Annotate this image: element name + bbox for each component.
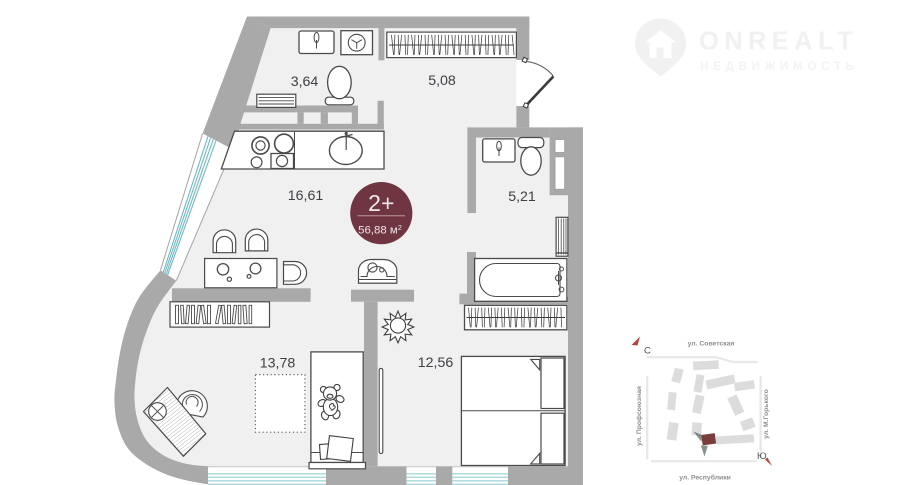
svg-text:5,08: 5,08 [428,73,456,89]
svg-text:5,21: 5,21 [508,189,536,205]
svg-text:2+: 2+ [368,190,394,216]
svg-text:С: С [644,346,651,357]
svg-text:12,56: 12,56 [418,355,454,371]
svg-text:3,64: 3,64 [291,74,319,90]
svg-text:ул. Профсоюзная: ул. Профсоюзная [636,386,643,446]
svg-text:НЕДВИЖИМОСТЬ: НЕДВИЖИМОСТЬ [700,61,859,73]
svg-text:ул. М.Горького: ул. М.Горького [763,389,770,439]
svg-text:56,88 м2: 56,88 м2 [358,223,402,237]
svg-text:13,78: 13,78 [260,356,296,372]
svg-text:ул. Советская: ул. Советская [688,341,735,348]
svg-text:ONREALT: ONREALT [699,28,858,56]
svg-text:16,61: 16,61 [288,188,324,204]
svg-text:ул. Республики: ул. Республики [679,474,731,482]
svg-text:Ю: Ю [757,451,767,462]
